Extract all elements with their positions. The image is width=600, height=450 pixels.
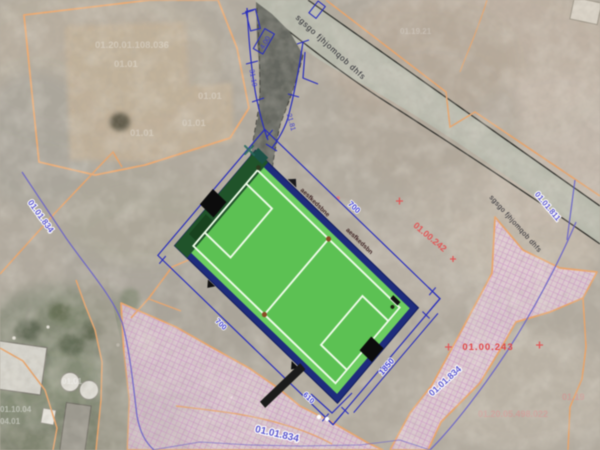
svg-text:01.00.243: 01.00.243	[462, 342, 513, 353]
